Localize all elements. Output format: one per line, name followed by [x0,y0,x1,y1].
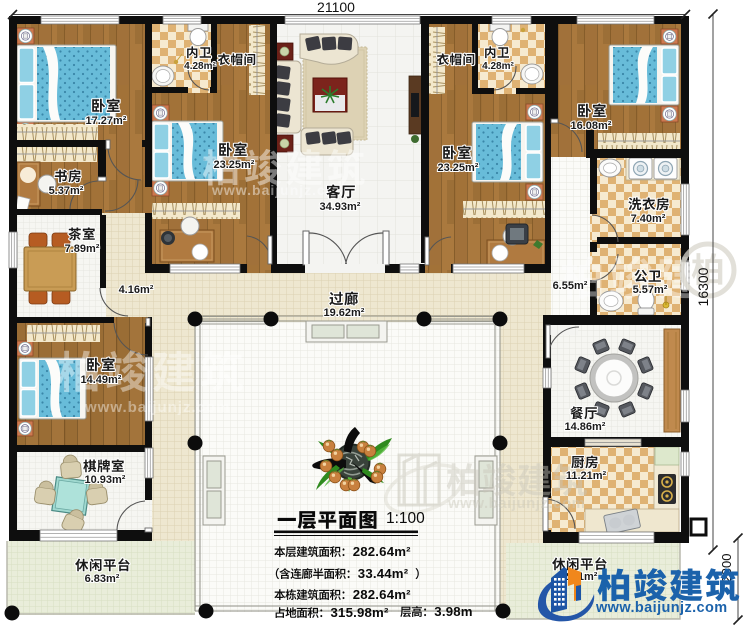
svg-text:7.89m²: 7.89m² [65,243,100,255]
svg-text:282.64m²: 282.64m² [353,587,411,602]
svg-text:7.40m²: 7.40m² [631,213,666,225]
svg-text:6.83m²: 6.83m² [85,573,120,585]
svg-text:14.49m²: 14.49m² [81,374,122,386]
svg-text:6.55m²: 6.55m² [553,280,588,292]
svg-text:www.baijunjz.com: www.baijunjz.com [84,399,230,416]
svg-text:www.baijunjz.com: www.baijunjz.com [595,600,728,616]
svg-text:5.57m²: 5.57m² [633,284,668,296]
svg-text:19.62m²: 19.62m² [324,307,365,319]
svg-text:16300: 16300 [695,267,711,306]
svg-text:4.28m²: 4.28m² [184,61,216,72]
svg-text:21100: 21100 [317,0,355,15]
svg-text:23.25m²: 23.25m² [214,159,255,171]
svg-text:4.16m²: 4.16m² [119,284,154,296]
svg-text:www.baijunjz.com: www.baijunjz.com [447,495,585,512]
svg-text:10.93m²: 10.93m² [85,474,126,486]
svg-text:23.25m²: 23.25m² [438,162,479,174]
svg-text:4.28m²: 4.28m² [482,61,514,72]
svg-text:33.44m²: 33.44m² [358,566,409,581]
svg-text:11.21m²: 11.21m² [566,470,607,482]
svg-text:16.08m²: 16.08m² [571,120,612,132]
svg-text:34.93m²: 34.93m² [320,201,361,213]
svg-text:282.64m²: 282.64m² [353,544,411,559]
svg-text:1:100: 1:100 [386,510,425,527]
svg-text:5.37m²: 5.37m² [49,185,84,197]
svg-text:14.86m²: 14.86m² [565,421,606,433]
svg-text:3.98m: 3.98m [434,604,472,619]
svg-text:315.98m²: 315.98m² [331,605,389,620]
svg-text:17.27m²: 17.27m² [86,115,127,127]
